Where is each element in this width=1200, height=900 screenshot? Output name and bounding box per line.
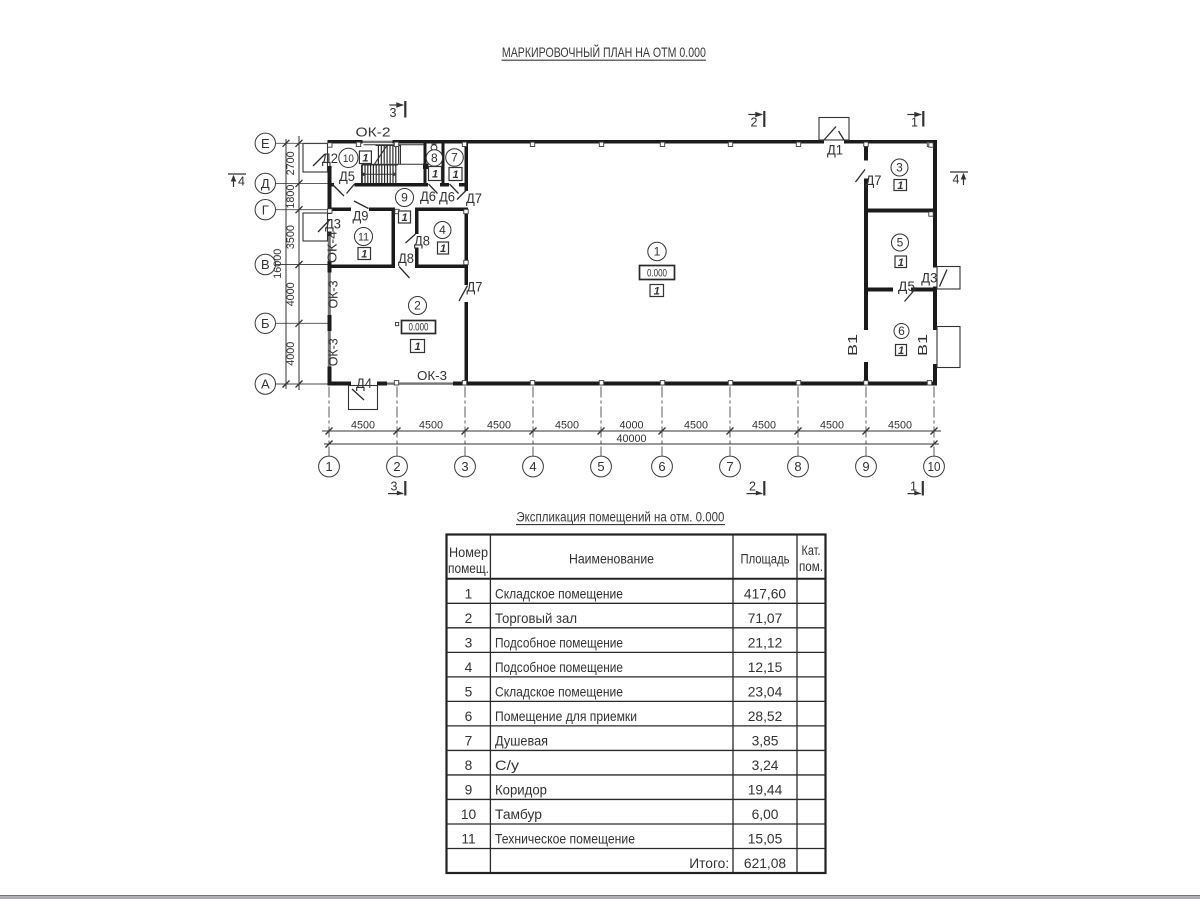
svg-text:ОК-2: ОК-2	[356, 126, 391, 140]
svg-text:Кат.: Кат.	[802, 543, 821, 558]
svg-text:Подсобное помещение: Подсобное помещение	[495, 660, 623, 675]
svg-text:ОК-3: ОК-3	[326, 281, 341, 309]
svg-text:Складское помещение: Складское помещение	[495, 684, 623, 699]
svg-text:3: 3	[391, 480, 398, 494]
svg-text:4500: 4500	[419, 420, 443, 432]
svg-text:0.000: 0.000	[647, 267, 667, 279]
svg-text:15,05: 15,05	[748, 832, 783, 847]
svg-text:помещ.: помещ.	[448, 561, 489, 576]
svg-text:1: 1	[911, 116, 918, 130]
svg-text:Д2: Д2	[322, 151, 338, 166]
svg-text:2700: 2700	[285, 151, 297, 175]
svg-text:МАРКИРОВОЧНЫЙ ПЛАН НА ОТМ 0.00: МАРКИРОВОЧНЫЙ ПЛАН НА ОТМ 0.000	[502, 43, 706, 60]
svg-text:4500: 4500	[820, 420, 844, 432]
svg-text:Номер: Номер	[449, 545, 488, 560]
svg-text:3: 3	[461, 459, 468, 474]
svg-text:1800: 1800	[285, 185, 297, 209]
svg-text:ОК-3: ОК-3	[417, 368, 447, 383]
svg-text:4500: 4500	[487, 420, 511, 432]
svg-text:3: 3	[896, 161, 903, 175]
svg-text:1: 1	[440, 243, 446, 255]
svg-text:4: 4	[953, 173, 960, 187]
svg-text:Подсобное помещение: Подсобное помещение	[495, 635, 623, 650]
svg-text:1: 1	[414, 341, 420, 353]
svg-text:1: 1	[654, 245, 661, 259]
svg-text:12,15: 12,15	[748, 660, 783, 675]
svg-text:Наименование: Наименование	[569, 552, 654, 567]
svg-text:71,07: 71,07	[748, 611, 783, 626]
svg-text:Площадь: Площадь	[741, 552, 790, 567]
svg-text:Д6: Д6	[439, 190, 455, 205]
svg-text:Г: Г	[262, 202, 269, 217]
svg-text:3,85: 3,85	[752, 734, 779, 749]
svg-text:4500: 4500	[684, 420, 708, 432]
svg-text:417,60: 417,60	[744, 586, 787, 601]
svg-text:В1: В1	[845, 334, 860, 356]
svg-text:2: 2	[751, 116, 758, 130]
svg-text:4500: 4500	[555, 420, 579, 432]
svg-text:0.000: 0.000	[409, 321, 429, 333]
svg-text:1: 1	[362, 152, 368, 164]
svg-text:16000: 16000	[272, 249, 284, 279]
svg-text:1: 1	[361, 249, 367, 261]
svg-text:Д4: Д4	[356, 376, 372, 391]
svg-text:Д5: Д5	[898, 279, 915, 294]
svg-text:3: 3	[390, 106, 397, 120]
svg-text:2: 2	[393, 459, 400, 474]
svg-text:1: 1	[897, 180, 903, 192]
svg-text:2: 2	[749, 480, 756, 494]
svg-text:23,04: 23,04	[748, 684, 783, 699]
svg-text:Д7: Д7	[467, 280, 483, 295]
svg-text:5: 5	[465, 684, 473, 699]
svg-text:6: 6	[898, 324, 905, 338]
svg-text:2: 2	[465, 611, 473, 626]
svg-text:1: 1	[465, 586, 473, 601]
svg-text:9: 9	[862, 459, 869, 474]
svg-text:11: 11	[461, 832, 475, 847]
svg-text:4: 4	[529, 459, 536, 474]
svg-text:7: 7	[451, 151, 458, 165]
svg-text:19,44: 19,44	[748, 783, 783, 798]
svg-text:Д: Д	[261, 176, 270, 191]
svg-text:Д8: Д8	[398, 251, 414, 266]
svg-text:А: А	[261, 377, 270, 392]
svg-text:1: 1	[452, 169, 458, 181]
svg-text:1: 1	[325, 459, 332, 474]
svg-text:3500: 3500	[285, 225, 297, 249]
svg-text:Итого:: Итого:	[689, 856, 729, 871]
svg-text:С/у: С/у	[495, 758, 519, 773]
svg-text:7: 7	[726, 459, 733, 474]
svg-text:В: В	[261, 257, 270, 272]
svg-text:1: 1	[401, 212, 407, 224]
svg-text:Торговый зал: Торговый зал	[495, 611, 577, 626]
svg-text:Экспликация помещений на отм.: Экспликация помещений на отм. 0.000	[516, 510, 724, 525]
svg-text:Складское помещение: Складское помещение	[495, 586, 623, 601]
svg-text:1: 1	[432, 169, 438, 181]
svg-text:4500: 4500	[752, 420, 776, 432]
svg-text:Д7: Д7	[466, 191, 482, 206]
svg-text:11: 11	[358, 232, 369, 244]
svg-text:4000: 4000	[285, 342, 297, 366]
svg-text:Д7: Д7	[866, 173, 882, 188]
svg-text:9: 9	[401, 191, 408, 205]
svg-text:10: 10	[928, 459, 941, 474]
svg-text:621,08: 621,08	[744, 856, 787, 871]
svg-text:1: 1	[898, 257, 904, 269]
svg-text:Душевая: Душевая	[495, 734, 548, 749]
svg-text:8: 8	[431, 151, 438, 165]
svg-text:4: 4	[465, 660, 473, 675]
svg-text:Д3: Д3	[325, 217, 341, 232]
svg-text:4500: 4500	[888, 420, 912, 432]
svg-text:4: 4	[238, 175, 245, 189]
svg-text:ОК-3: ОК-3	[326, 338, 341, 366]
svg-text:4500: 4500	[351, 420, 375, 432]
svg-text:Техническое помещение: Техническое помещение	[495, 832, 635, 847]
svg-text:Д3: Д3	[921, 271, 937, 286]
svg-text:6: 6	[465, 709, 473, 724]
svg-text:6: 6	[658, 459, 665, 474]
svg-text:Б: Б	[261, 316, 270, 331]
svg-text:9: 9	[465, 783, 473, 798]
svg-text:пом.: пом.	[799, 559, 823, 574]
svg-text:3: 3	[465, 635, 473, 650]
svg-text:8: 8	[465, 758, 473, 773]
svg-text:4000: 4000	[285, 282, 297, 306]
svg-text:3,24: 3,24	[752, 758, 779, 773]
svg-text:Д5: Д5	[339, 169, 355, 184]
svg-text:Д6: Д6	[420, 189, 436, 204]
svg-text:2: 2	[414, 299, 421, 313]
svg-text:Коридор: Коридор	[495, 783, 547, 798]
svg-text:1: 1	[898, 345, 904, 357]
svg-text:Тамбур: Тамбур	[495, 807, 542, 822]
svg-text:7: 7	[465, 734, 473, 749]
svg-text:1: 1	[654, 286, 660, 298]
svg-text:5: 5	[897, 236, 904, 250]
svg-text:ОК-4: ОК-4	[325, 231, 340, 263]
svg-text:Д9: Д9	[353, 209, 369, 224]
svg-text:8: 8	[794, 459, 801, 474]
svg-text:4000: 4000	[620, 420, 644, 432]
svg-text:В1: В1	[915, 334, 930, 356]
svg-text:40000: 40000	[617, 433, 647, 445]
svg-text:10: 10	[461, 807, 477, 822]
svg-text:5: 5	[597, 459, 604, 474]
svg-text:28,52: 28,52	[748, 709, 783, 724]
svg-text:6,00: 6,00	[752, 807, 779, 822]
svg-text:Д8: Д8	[414, 234, 430, 249]
svg-text:Е: Е	[261, 136, 270, 151]
svg-text:Помещение для приемки: Помещение для приемки	[495, 709, 637, 724]
svg-text:21,12: 21,12	[748, 635, 783, 650]
svg-text:Д1: Д1	[827, 143, 843, 158]
svg-text:4: 4	[439, 223, 446, 237]
svg-text:10: 10	[343, 153, 354, 165]
